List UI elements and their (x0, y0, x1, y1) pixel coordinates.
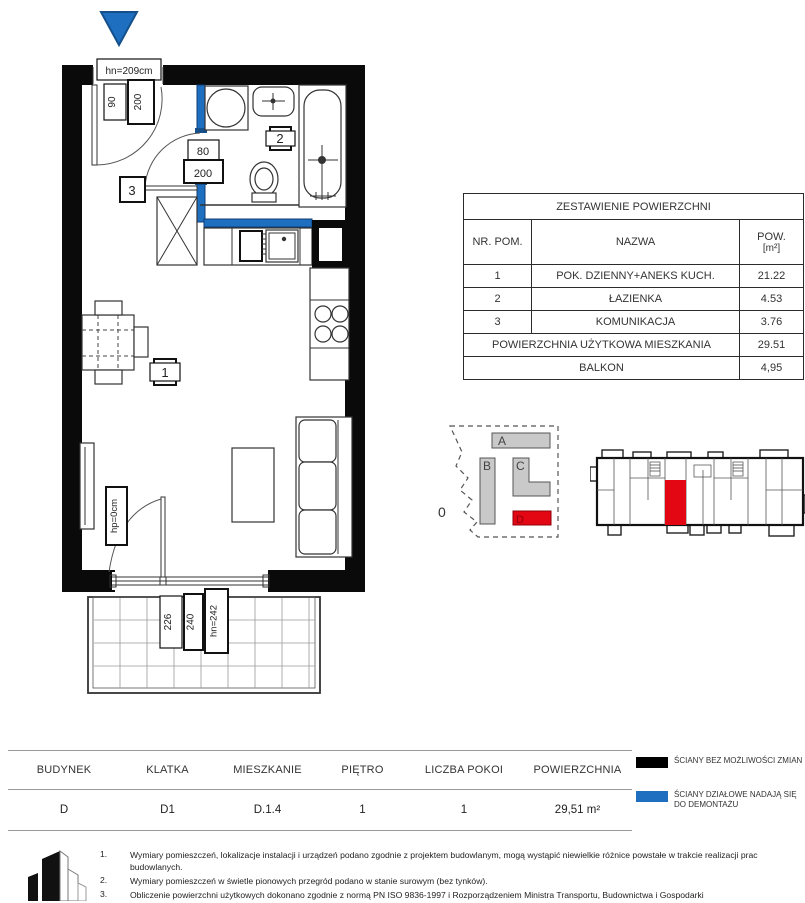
entrance-dimension: hn=209cm 90 200 (97, 59, 161, 124)
svg-text:80: 80 (197, 146, 209, 158)
info-header-liczba-pokoi: LICZBA POKOI (405, 751, 523, 789)
svg-text:226: 226 (163, 613, 174, 630)
area-summary-table: ZESTAWIENIE POWIERZCHNI NR. POM. NAZWA P… (463, 193, 804, 380)
table-row: 2 ŁAZIENKA 4.53 (464, 288, 804, 311)
room-label-3: 3 (120, 177, 145, 202)
table-row: 3 KOMUNIKACJA 3.76 (464, 311, 804, 334)
svg-text:90: 90 (107, 96, 118, 108)
block-c-label: C (516, 459, 525, 473)
blue-wall-swatch (636, 791, 668, 802)
svg-text:3: 3 (128, 183, 135, 198)
block-d-label: D (516, 514, 524, 526)
svg-text:hn=242: hn=242 (209, 605, 220, 637)
block-a-label: A (498, 434, 506, 448)
svg-text:240: 240 (186, 613, 197, 630)
area-table-title: ZESTAWIENIE POWIERZCHNI (464, 194, 804, 220)
kitchen-counter-right (310, 268, 349, 380)
ventilation-shaft (312, 220, 349, 268)
building-outline (597, 458, 803, 525)
building-blocks: A B C D (480, 433, 551, 526)
washing-machine (205, 86, 248, 130)
apartment-info-bar: BUDYNEK KLATKA MIESZKANIE PIĘTRO LICZBA … (8, 750, 632, 831)
floor-plan: 2 3 1 80 200 hn=209cm 90 200 (0, 0, 420, 730)
total-row: POWIERZCHNIA UŻYTKOWA MIESZKANIA 29.51 (464, 334, 804, 357)
toilet (250, 162, 278, 205)
svg-text:hn=209cm: hn=209cm (106, 66, 153, 77)
info-value-mieszkanie: D.1.4 (215, 790, 320, 830)
bathtub (299, 85, 346, 207)
svg-text:hp=0cm: hp=0cm (109, 499, 120, 533)
coffee-table (232, 448, 274, 522)
info-value-powierzchnia: 29,51 m² (523, 790, 632, 830)
note-2: 2. Wymiary pomieszczeń w świetle pionowy… (100, 875, 800, 887)
col-header-name: NAZWA (532, 220, 740, 265)
table-row: 1 POK. DZIENNY+ANEKS KUCH. 21.22 (464, 265, 804, 288)
legend-item-partition-walls: Ściany działowe nadają się do demontażu (636, 790, 805, 811)
svg-text:2: 2 (276, 131, 283, 146)
dining-table (82, 301, 148, 384)
site-plan: A B C D 0 (425, 412, 570, 557)
info-value-klatka: D1 (120, 790, 215, 830)
developer-logo (24, 847, 106, 901)
room-label-2: 2 (266, 127, 295, 150)
room-label-1: 1 (150, 359, 180, 385)
highlighted-unit (665, 480, 686, 525)
legend-item-fixed-walls: Ściany bez możliwości zmian (636, 756, 805, 768)
sofa (296, 417, 352, 557)
svg-text:200: 200 (133, 93, 144, 110)
balcony-window (110, 572, 269, 590)
info-header-klatka: KLATKA (120, 751, 215, 789)
col-header-nr: NR. POM. (464, 220, 532, 265)
info-header-budynek: BUDYNEK (8, 751, 120, 789)
bath-door-dimension: 80 200 (184, 140, 223, 183)
window-sill-label: hp=0cm (106, 487, 127, 545)
balcony-dimension: 226 240 hn=242 (160, 589, 228, 653)
black-wall-swatch (636, 757, 668, 768)
note-1: 1. Wymiary pomieszczeń, lokalizacje inst… (100, 849, 800, 873)
kitchen-sink (266, 230, 298, 262)
svg-text:1: 1 (161, 365, 168, 380)
info-header-powierzchnia: POWIERZCHNIA (523, 751, 632, 789)
info-value-budynek: D (8, 790, 120, 830)
footnotes: 1. Wymiary pomieszczeń, lokalizacje inst… (100, 849, 800, 903)
balcony-row: BALKON 4,95 (464, 357, 804, 380)
entrance-arrow-icon (101, 12, 137, 45)
info-header-mieszkanie: MIESZKANIE (215, 751, 320, 789)
info-value-pietro: 1 (320, 790, 405, 830)
info-value-liczba-pokoi: 1 (405, 790, 523, 830)
level-label: 0 (438, 504, 446, 520)
block-b-label: B (483, 459, 491, 473)
walls-legend: Ściany bez możliwości zmian Ściany dział… (636, 750, 805, 811)
building-overview (590, 440, 805, 550)
sideboard (80, 443, 94, 529)
note-3: 3. Obliczenie powierzchni użytkowych dok… (100, 889, 800, 901)
info-header-pietro: PIĘTRO (320, 751, 405, 789)
col-header-pow: POW. [m²] (740, 220, 804, 265)
bathroom-sink (253, 87, 294, 116)
svg-text:200: 200 (194, 168, 212, 180)
wardrobe (157, 197, 197, 265)
